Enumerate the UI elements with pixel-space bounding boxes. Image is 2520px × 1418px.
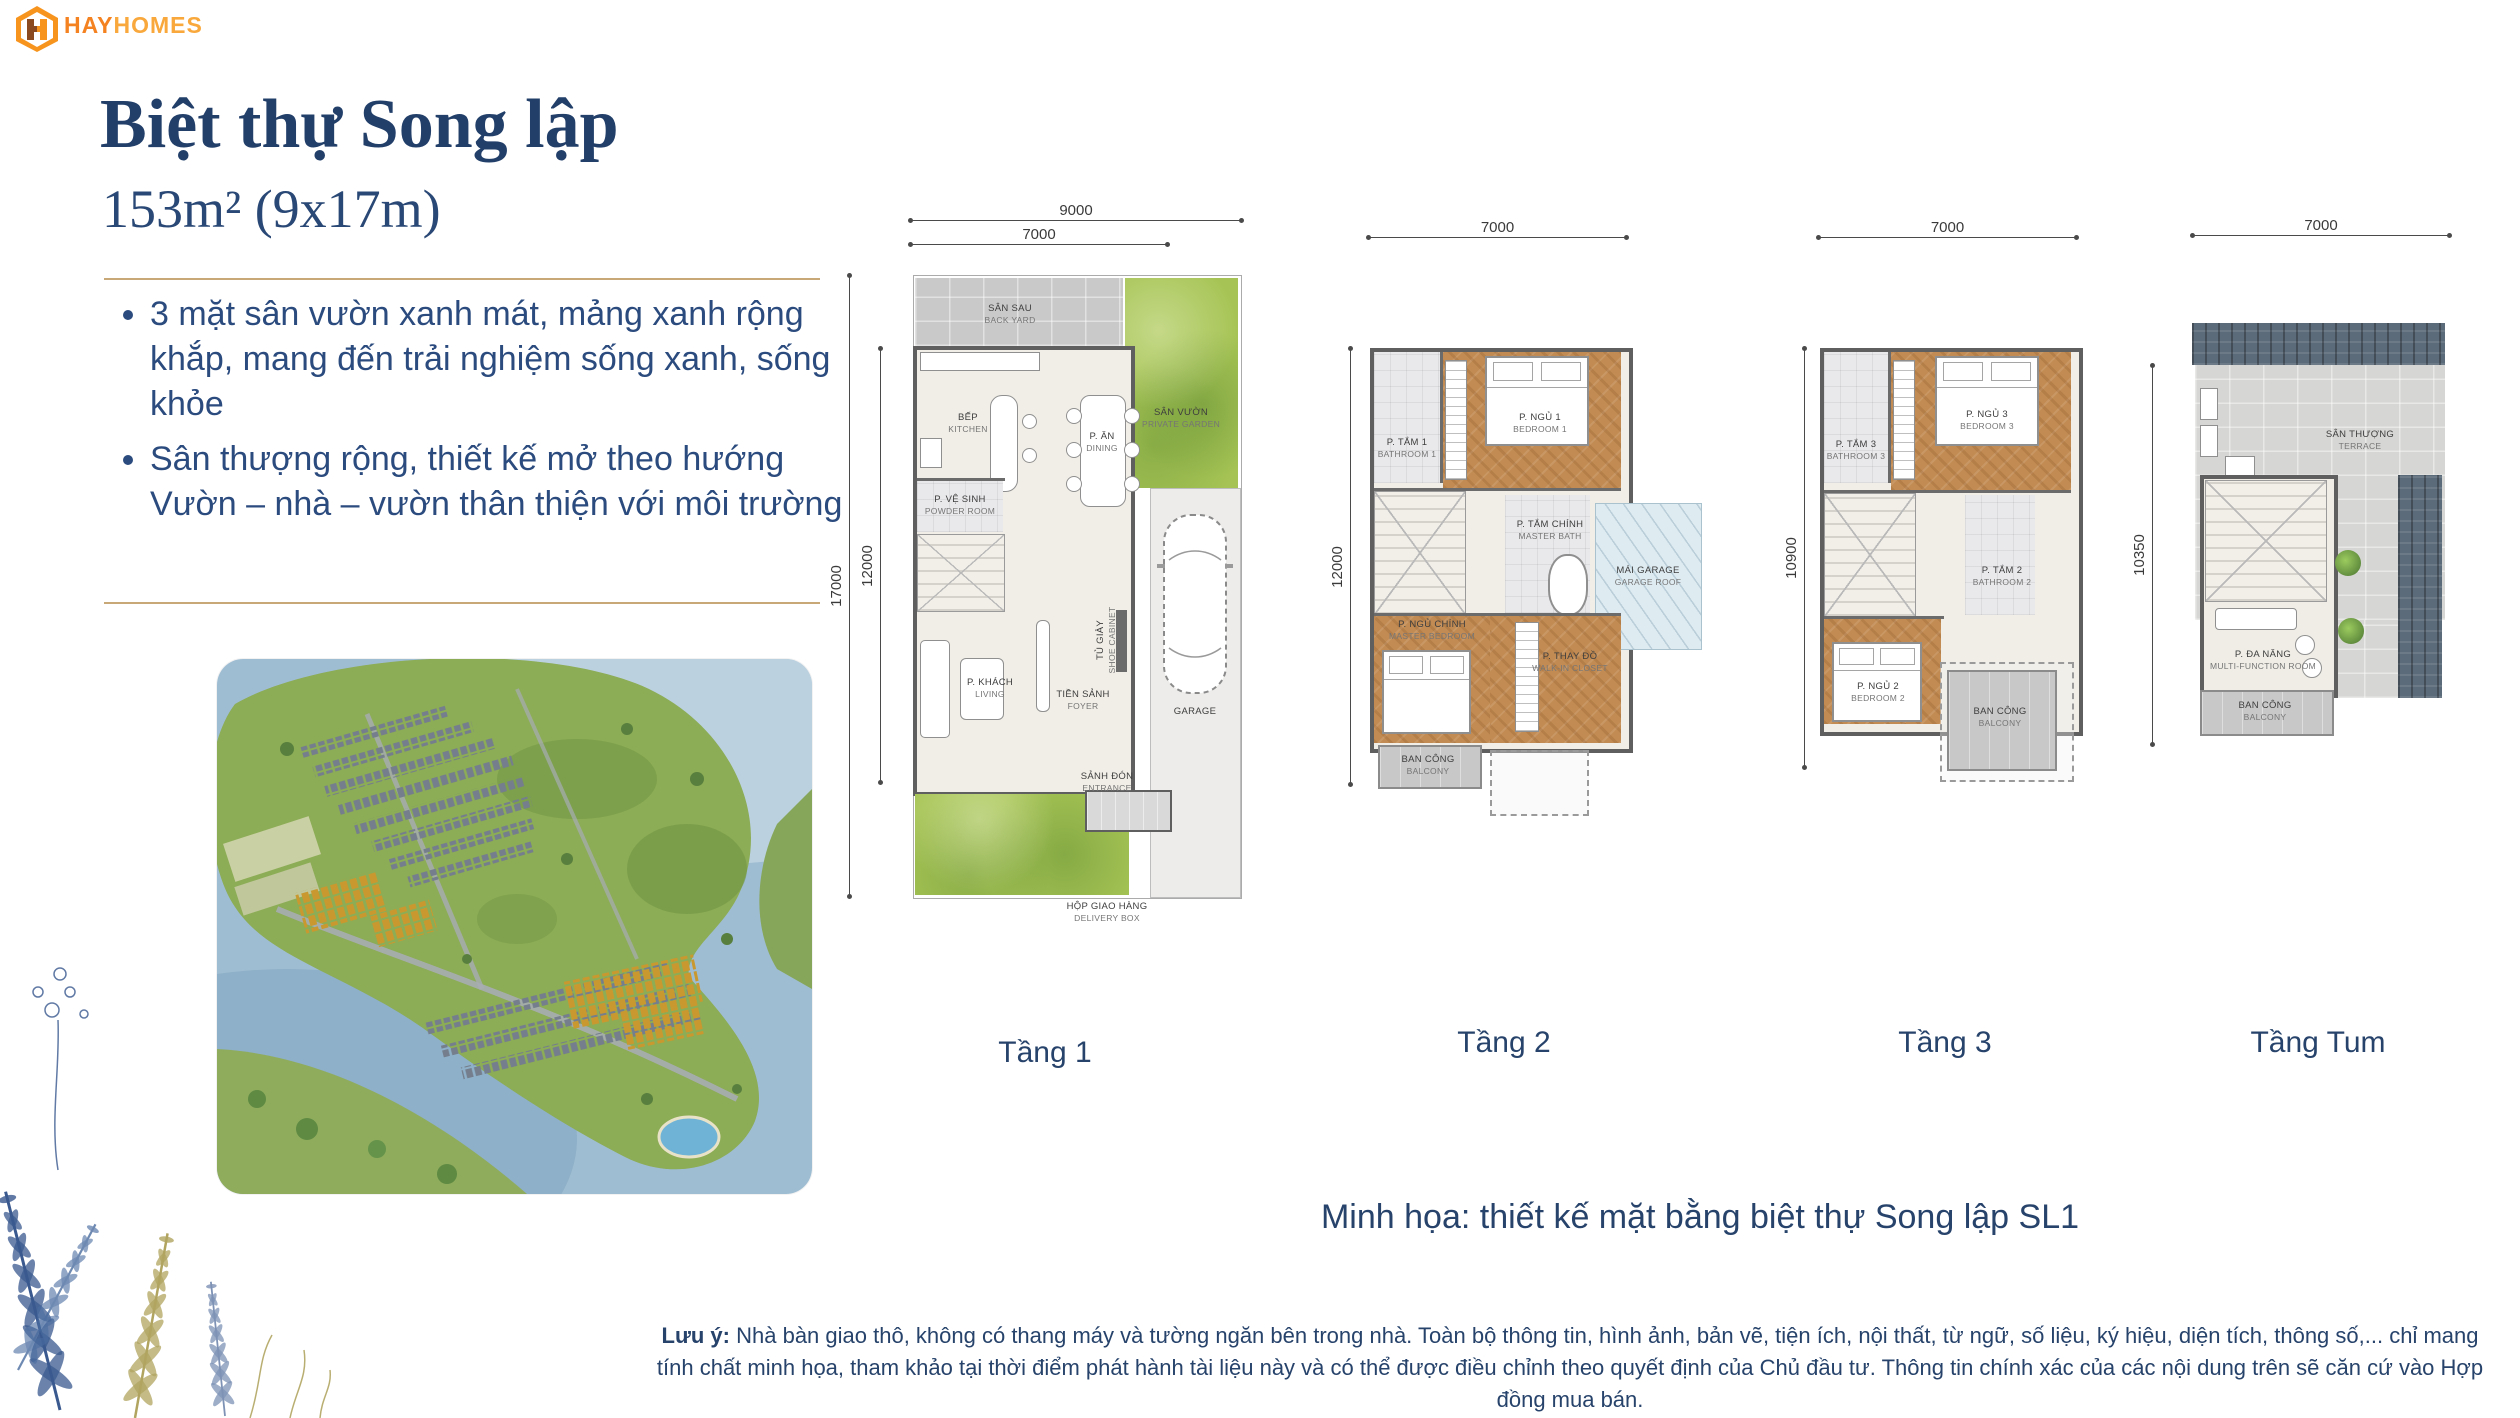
roof-overhang bbox=[1490, 750, 1589, 816]
planter bbox=[2200, 425, 2218, 457]
page-title: Biệt thự Song lập bbox=[100, 88, 619, 162]
kitchen-sink bbox=[920, 438, 942, 468]
closet-floor bbox=[1490, 616, 1621, 743]
bathroom-1 bbox=[1374, 352, 1440, 483]
hayhomes-logo-icon bbox=[14, 5, 60, 53]
roof-top bbox=[2192, 323, 2445, 365]
room-label-bedroom3: P. NGỦ 3BEDROOM 3 bbox=[1960, 409, 2014, 431]
brand-name: HAYHOMES bbox=[64, 12, 203, 39]
room-label-powder: P. VỆ SINHPOWDER ROOM bbox=[925, 494, 995, 516]
wardrobe bbox=[1893, 360, 1915, 480]
room-label-shoe: TỦ GIÀYSHOE CABINET bbox=[1095, 607, 1117, 674]
dimension-17000: 17000 bbox=[849, 275, 850, 897]
bathtub bbox=[1548, 554, 1588, 616]
room-label-balcony: BAN CÔNGBALCONY bbox=[1401, 754, 1454, 776]
dimension-7000: 7000 bbox=[910, 244, 1168, 245]
room-label-entrance: SẢNH ĐÓNENTRANCE bbox=[1081, 771, 1134, 793]
wardrobe bbox=[1445, 360, 1467, 480]
room-label-living: P. KHÁCHLIVING bbox=[967, 677, 1013, 699]
tv-console bbox=[1036, 620, 1050, 712]
disclaimer-text: Nhà bàn giao thô, không có thang máy và … bbox=[657, 1323, 2483, 1412]
divider-bottom bbox=[104, 602, 820, 604]
room-label-dining: P. ĂNDINING bbox=[1086, 431, 1118, 453]
floor-plan-1: 9000 7000 17000 12000 bbox=[840, 190, 1290, 980]
room-label-closet: P. THAY ĐỒWALK-IN CLOSET bbox=[1532, 651, 1608, 673]
dimension-10900: 10900 bbox=[1804, 348, 1805, 768]
planter bbox=[2200, 388, 2218, 420]
divider-top bbox=[104, 278, 820, 280]
room-label-delivery: HỘP GIAO HÀNGDELIVERY BOX bbox=[1067, 901, 1148, 923]
room-label-bedroom1: P. NGỦ 1BEDROOM 1 bbox=[1513, 412, 1567, 434]
brand-primary: HAY bbox=[64, 12, 113, 38]
feature-list: 3 mặt sân vườn xanh mát, mảng xanh rộng … bbox=[104, 292, 856, 536]
feature-item: Sân thượng rộng, thiết kế mở theo hướng … bbox=[150, 437, 856, 527]
dining-chair bbox=[1066, 442, 1082, 458]
plant bbox=[2338, 618, 2364, 644]
bed bbox=[1935, 356, 2039, 446]
roof-side bbox=[2398, 475, 2442, 698]
floor-label-1: Tầng 1 bbox=[965, 1036, 1125, 1070]
botanical-decoration bbox=[0, 940, 340, 1418]
room-label-backyard: SÂN SAUBACK YARD bbox=[984, 303, 1035, 325]
illustration-caption: Minh họa: thiết kế mặt bằng biệt thự Son… bbox=[1240, 1198, 2160, 1237]
dimension-12000: 12000 bbox=[880, 348, 881, 783]
dimension-9000: 9000 bbox=[910, 220, 1242, 221]
kitchen-counter bbox=[920, 352, 1040, 371]
room-label-masterbedroom: P. NGỦ CHÍNHMASTER BEDROOM bbox=[1389, 619, 1475, 641]
closet-shelves bbox=[1515, 622, 1539, 732]
area-subtitle: 153m² (9x17m) bbox=[102, 178, 441, 240]
dimension-7000: 7000 bbox=[1368, 237, 1627, 238]
sofa bbox=[920, 640, 950, 738]
floor-label-2: Tầng 2 bbox=[1424, 1026, 1584, 1060]
dimension-7000: 7000 bbox=[1818, 237, 2077, 238]
page: HAYHOMES Biệt thự Song lập 153m² (9x17m)… bbox=[0, 0, 2520, 1418]
staircase bbox=[1374, 491, 1466, 615]
shoe-cabinet bbox=[1116, 610, 1127, 672]
car bbox=[1155, 508, 1235, 700]
room-label-terrace: SÂN THƯỢNGTERRACE bbox=[2326, 429, 2394, 451]
bench bbox=[2215, 608, 2297, 630]
stool bbox=[1022, 414, 1037, 429]
room-label-masterbath: P. TẮM CHÍNHMASTER BATH bbox=[1517, 519, 1584, 541]
staircase bbox=[917, 534, 1005, 612]
room-label-garage: GARAGE bbox=[1174, 706, 1216, 718]
dining-chair bbox=[1066, 476, 1082, 492]
floor-plan-2: 7000 12000 P. TẮM 1BATHROOM 1 P. NGỦ 1BE… bbox=[1330, 210, 1730, 850]
dining-chair bbox=[1124, 408, 1140, 424]
dimension-10350: 10350 bbox=[2152, 365, 2153, 745]
floor-label-tum: Tầng Tum bbox=[2238, 1026, 2398, 1060]
bathroom-3 bbox=[1824, 352, 1888, 483]
disclaimer-label: Lưu ý: bbox=[662, 1323, 730, 1348]
room-label-balcony: BAN CÔNGBALCONY bbox=[2238, 700, 2291, 722]
bed bbox=[1382, 650, 1471, 734]
private-garden bbox=[1125, 278, 1238, 488]
room-label-bathroom1: P. TẮM 1BATHROOM 1 bbox=[1378, 437, 1437, 459]
room-label-kitchen: BẾPKITCHEN bbox=[948, 412, 987, 434]
dining-chair bbox=[1124, 442, 1140, 458]
feature-item: 3 mặt sân vườn xanh mát, mảng xanh rộng … bbox=[150, 292, 856, 427]
floor-plan-4: 7000 10350 SÂN THƯỢNGTERRACE P. ĐA NĂNGM… bbox=[2130, 210, 2520, 810]
staircase bbox=[1824, 493, 1916, 617]
room-label-bathroom2: P. TẮM 2BATHROOM 2 bbox=[1973, 565, 2032, 587]
room-label-bedroom2: P. NGỦ 2BEDROOM 2 bbox=[1851, 681, 1905, 703]
room-label-balcony: BAN CÔNGBALCONY bbox=[1973, 706, 2026, 728]
room-label-garageroof: MÁI GARAGEGARAGE ROOF bbox=[1615, 565, 1682, 587]
brand-secondary: HOMES bbox=[113, 12, 202, 38]
disclaimer-note: Lưu ý: Nhà bàn giao thô, không có thang … bbox=[650, 1320, 2490, 1416]
floor-label-3: Tầng 3 bbox=[1865, 1026, 2025, 1060]
plant bbox=[2335, 550, 2361, 576]
room-label-garden: SÂN VƯỜNPRIVATE GARDEN bbox=[1142, 407, 1220, 429]
room-label-multi: P. ĐA NĂNGMULTI-FUNCTION ROOM bbox=[2210, 649, 2316, 671]
room-label-bathroom3: P. TẮM 3BATHROOM 3 bbox=[1827, 439, 1886, 461]
room-label-foyer: TIỀN SẢNHFOYER bbox=[1056, 689, 1109, 711]
dining-chair bbox=[1066, 408, 1082, 424]
dimension-7000: 7000 bbox=[2192, 235, 2450, 236]
dining-chair bbox=[1124, 476, 1140, 492]
partition-wall bbox=[917, 478, 1005, 481]
entrance-porch bbox=[1085, 790, 1172, 832]
floor-plan-3: 7000 10900 P. TẮM 3BATHROOM 3 P. NGỦ 3BE… bbox=[1790, 210, 2120, 810]
stool bbox=[1022, 448, 1037, 463]
dimension-12000: 12000 bbox=[1350, 348, 1351, 785]
bathroom-2 bbox=[1965, 495, 2035, 615]
staircase bbox=[2205, 480, 2327, 602]
